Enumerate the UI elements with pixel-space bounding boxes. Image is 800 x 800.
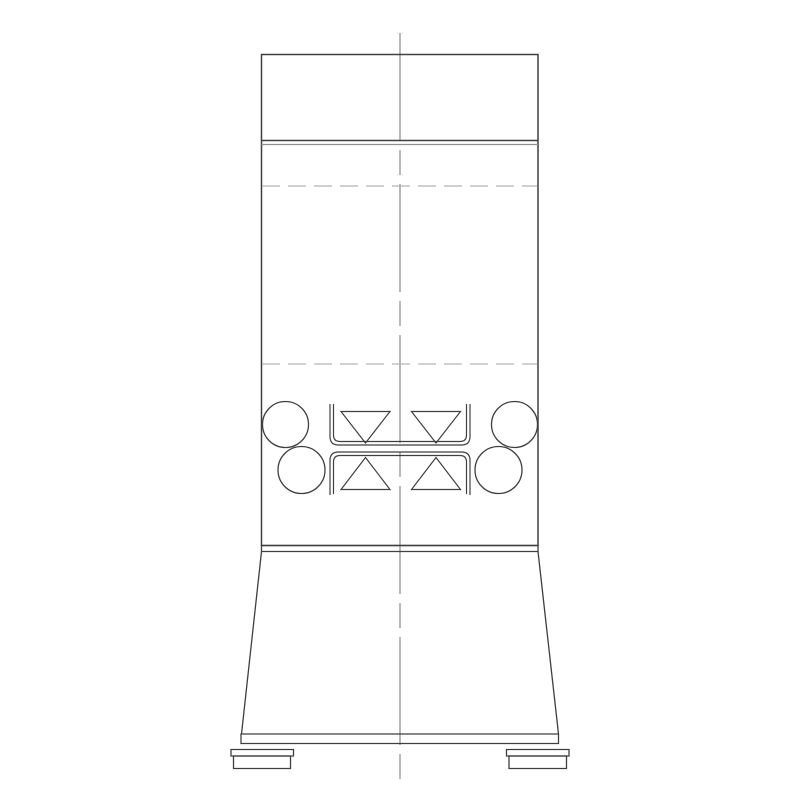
skirt-right-edge: [538, 552, 559, 735]
left-foot-block: [234, 756, 291, 769]
right-foot-block: [509, 756, 567, 769]
triangle-symbol-down-left: [341, 412, 390, 444]
triangle-symbol-down-right: [412, 412, 461, 444]
roller-circle-top-left: [263, 402, 309, 448]
roller-circle-top-right: [492, 402, 538, 448]
roller-circle-bottom-right: [475, 447, 522, 494]
vessel-elevation-drawing: [0, 0, 800, 800]
technical-drawing-canvas: [0, 0, 800, 800]
skirt-left-edge: [242, 552, 262, 735]
triangle-symbol-up-left: [341, 458, 390, 490]
right-foot-top-plate: [507, 750, 570, 757]
roller-circle-bottom-left: [278, 447, 325, 494]
left-foot-top-plate: [231, 750, 294, 757]
triangle-symbol-up-right: [412, 458, 461, 490]
